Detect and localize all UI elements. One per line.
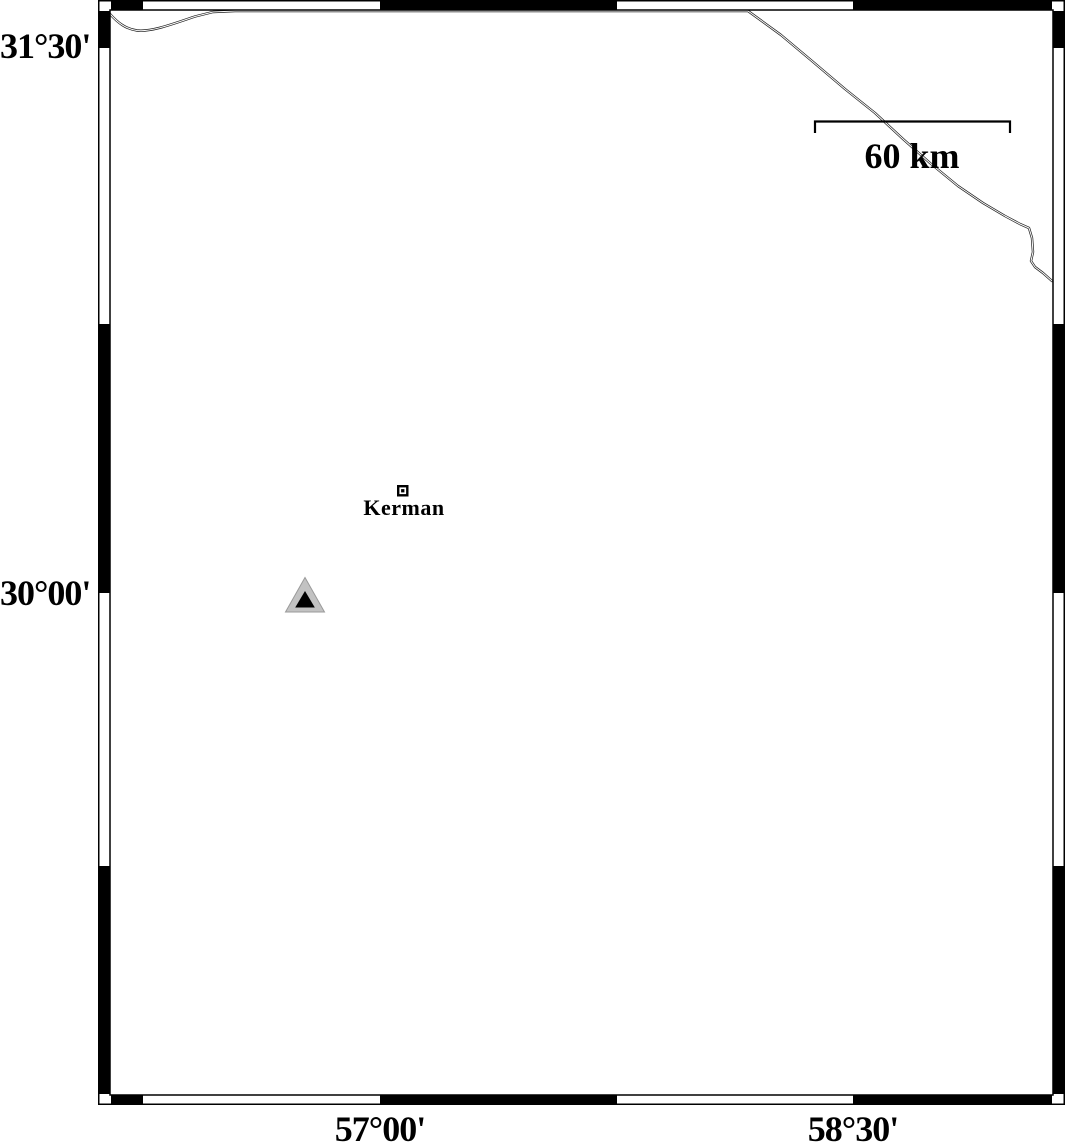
lat-label-31-30: 31°30' — [0, 28, 90, 64]
station-triangle-icon — [286, 578, 325, 613]
frame-ticks-left — [99, 11, 110, 1094]
frame-ticks-right — [1054, 11, 1065, 1094]
map-figure: 31°30' 30°00' 57°00' 58°30' 60 km Kerman — [0, 0, 1066, 1147]
scale-bar-label: 60 km — [832, 138, 992, 174]
lon-label-57-00: 57°00' — [300, 1111, 460, 1147]
lon-label-58-30: 58°30' — [773, 1111, 933, 1147]
frame-ticks-bottom — [111, 1095, 1052, 1105]
scale-bar — [815, 122, 1010, 134]
frame-ticks-top — [111, 1, 1052, 11]
lat-label-30-00: 30°00' — [0, 575, 90, 611]
city-label-kerman: Kerman — [344, 497, 464, 519]
